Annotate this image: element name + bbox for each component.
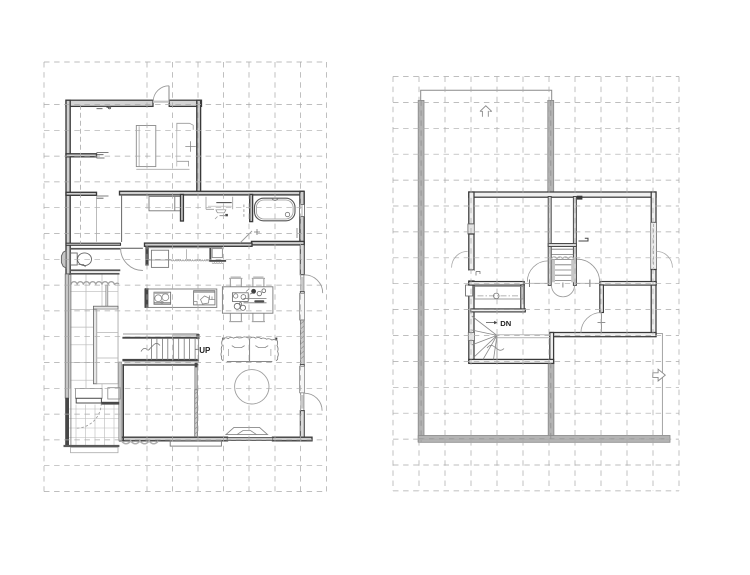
svg-text:DN: DN bbox=[500, 319, 511, 328]
svg-text:UP: UP bbox=[199, 346, 211, 355]
